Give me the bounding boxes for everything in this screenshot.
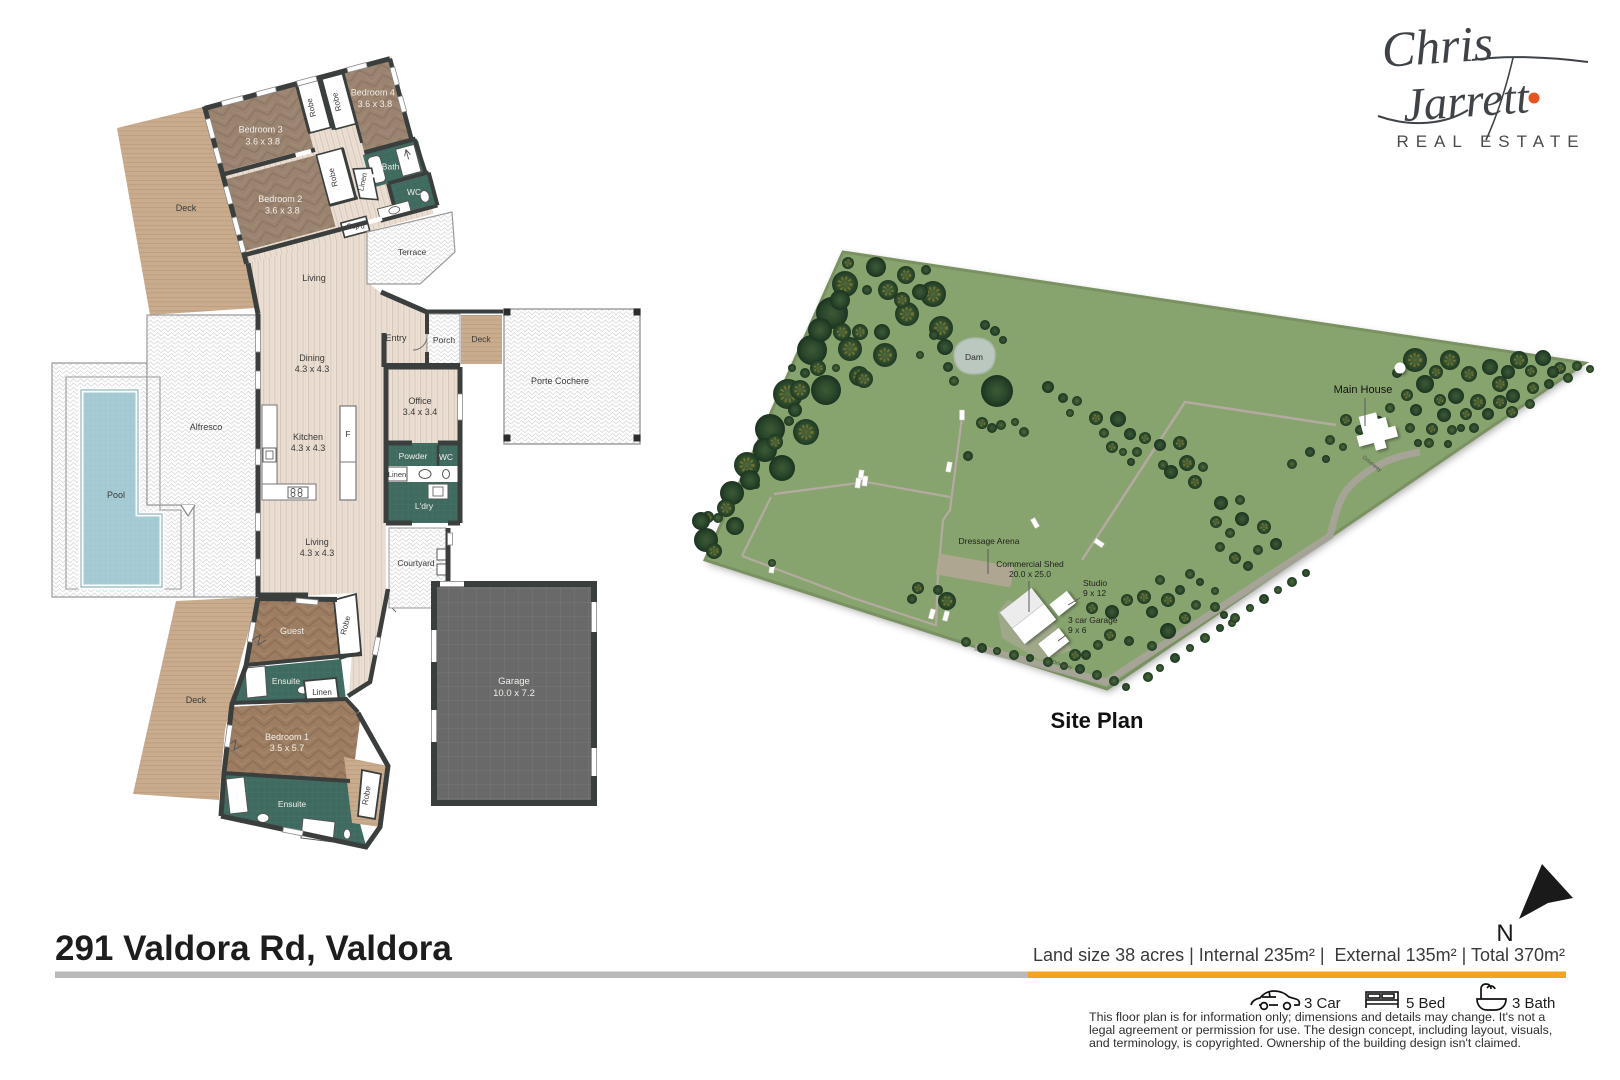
svg-text:Linen: Linen [312, 688, 332, 697]
svg-text:Deck: Deck [186, 695, 207, 705]
svg-text:Bedroom 2: Bedroom 2 [258, 194, 302, 204]
svg-text:Ensuite: Ensuite [278, 799, 307, 809]
svg-text:Studio: Studio [1083, 578, 1107, 588]
svg-text:Kitchen: Kitchen [293, 432, 323, 442]
svg-text:Guest: Guest [280, 626, 305, 636]
svg-text:3.6 x 3.8: 3.6 x 3.8 [358, 99, 393, 109]
svg-text:F: F [345, 429, 350, 439]
svg-text:Main House: Main House [1334, 384, 1393, 396]
svg-text:291 Valdora Rd, Valdora: 291 Valdora Rd, Valdora [55, 929, 452, 968]
svg-text:Commercial Shed: Commercial Shed [996, 559, 1064, 569]
svg-text:Chris: Chris [1380, 14, 1495, 78]
svg-text:Living: Living [302, 273, 326, 283]
svg-text:This floor plan is for informa: This floor plan is for information only;… [1089, 1010, 1545, 1024]
svg-text:Deck: Deck [471, 334, 491, 344]
svg-text:Porch: Porch [433, 335, 455, 345]
svg-text:Powder: Powder [399, 451, 428, 461]
svg-text:Linen: Linen [388, 470, 406, 479]
svg-text:Pool: Pool [107, 490, 125, 500]
svg-text:9 x 6: 9 x 6 [1068, 625, 1087, 635]
svg-text:3.4 x 3.4: 3.4 x 3.4 [403, 407, 438, 417]
svg-text:3.6 x 3.8: 3.6 x 3.8 [245, 136, 280, 146]
svg-text:WC: WC [439, 452, 453, 462]
svg-text:3.6 x 3.8: 3.6 x 3.8 [265, 206, 300, 216]
svg-text:4.3 x 4.3: 4.3 x 4.3 [300, 548, 335, 558]
svg-text:Living: Living [305, 537, 329, 547]
svg-text:REAL ESTATE: REAL ESTATE [1396, 132, 1585, 151]
svg-text:and terminology, is copyrighte: and terminology, is copyrighted. Ownersh… [1089, 1036, 1521, 1050]
svg-text:Bath: Bath [382, 161, 400, 171]
svg-text:Bedroom 1: Bedroom 1 [265, 732, 309, 742]
svg-text:Porte Cochere: Porte Cochere [531, 376, 589, 386]
svg-text:Bedroom 4: Bedroom 4 [351, 87, 395, 97]
svg-text:Terrace: Terrace [398, 247, 427, 257]
svg-text:Courtyard: Courtyard [397, 558, 435, 568]
svg-text:10.0 x 7.2: 10.0 x 7.2 [493, 688, 535, 699]
svg-text:Entry: Entry [385, 333, 407, 343]
svg-text:9 x 12: 9 x 12 [1083, 588, 1106, 598]
svg-text:Dining: Dining [299, 353, 325, 363]
svg-text:Dressage Arena: Dressage Arena [959, 536, 1020, 546]
svg-text:WC: WC [407, 187, 421, 197]
svg-text:Site Plan: Site Plan [1051, 708, 1144, 733]
svg-text:20.0 x 25.0: 20.0 x 25.0 [1009, 569, 1051, 579]
svg-text:Garage: Garage [498, 676, 530, 687]
svg-text:Deck: Deck [176, 203, 197, 213]
svg-text:Dam: Dam [965, 352, 983, 362]
svg-text:3.5 x 5.7: 3.5 x 5.7 [270, 743, 305, 753]
svg-text:Bedroom 3: Bedroom 3 [239, 125, 283, 135]
svg-text:legal agreement or permission: legal agreement or permission for use. T… [1089, 1023, 1552, 1037]
svg-text:4.3 x 4.3: 4.3 x 4.3 [291, 443, 326, 453]
svg-text:Alfresco: Alfresco [190, 422, 223, 432]
svg-text:Land size 38 acres | Internal: Land size 38 acres | Internal 235m² | Ex… [1033, 945, 1565, 965]
svg-text:4.3 x 4.3: 4.3 x 4.3 [295, 364, 330, 374]
svg-text:Office: Office [408, 396, 431, 406]
svg-text:Ensuite: Ensuite [272, 676, 301, 686]
svg-text:L'dry: L'dry [415, 501, 434, 511]
svg-text:3 car Garage: 3 car Garage [1068, 615, 1118, 625]
svg-text:N: N [1496, 920, 1513, 947]
svg-text:Cup'd: Cup'd [347, 223, 365, 230]
